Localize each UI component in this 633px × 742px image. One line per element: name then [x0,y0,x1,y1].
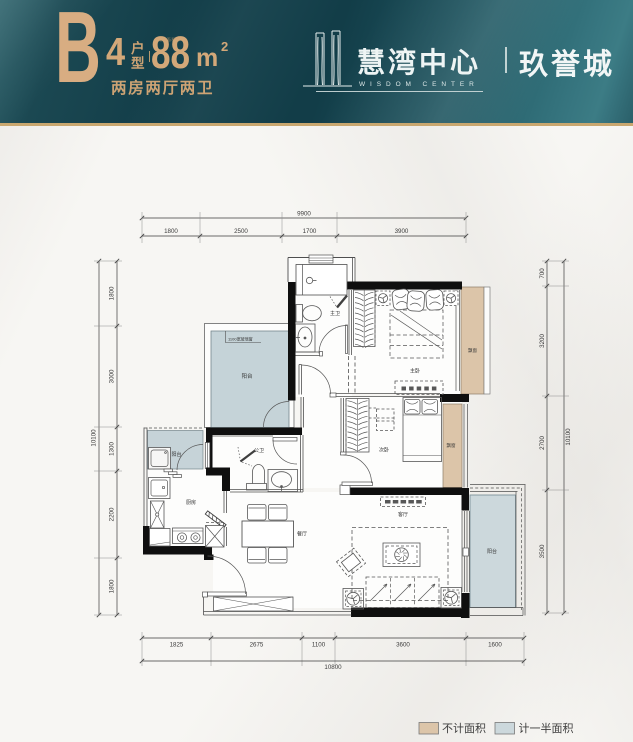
svg-text:3600: 3600 [396,642,410,649]
svg-text:1300: 1300 [109,442,116,456]
svg-text:2500: 2500 [234,228,248,235]
svg-text:计一半面积: 计一半面积 [519,721,574,735]
svg-text:餐厅: 餐厅 [297,531,307,538]
svg-text:3000: 3000 [109,369,116,383]
svg-text:阳台: 阳台 [241,372,253,380]
svg-text:次卧: 次卧 [379,447,389,454]
svg-text:1700: 1700 [303,228,317,235]
svg-text:不计面积: 不计面积 [442,722,486,735]
svg-text:3900: 3900 [395,228,409,235]
svg-text:1100: 1100 [312,642,326,649]
svg-text:阳台: 阳台 [487,548,497,555]
svg-text:厨房: 厨房 [186,499,196,506]
svg-text:1825: 1825 [170,642,184,649]
svg-text:阳台: 阳台 [171,451,181,458]
svg-text:2200: 2200 [109,507,116,521]
svg-text:10100: 10100 [565,428,572,446]
svg-text:公卫: 公卫 [254,448,264,454]
svg-text:1800: 1800 [109,286,116,300]
svg-text:1100宽玻璃窗: 1100宽玻璃窗 [228,336,253,342]
svg-text:客厅: 客厅 [398,511,408,518]
svg-text:10100: 10100 [91,429,98,447]
svg-text:主卫: 主卫 [330,310,340,317]
svg-text:2675: 2675 [250,642,264,649]
svg-text:700: 700 [539,268,546,279]
svg-text:10800: 10800 [324,664,342,671]
svg-text:2700: 2700 [539,436,546,450]
svg-text:1600: 1600 [488,642,502,649]
svg-text:9900: 9900 [297,211,311,218]
svg-text:飘窗: 飘窗 [447,442,456,449]
svg-text:1800: 1800 [164,228,178,235]
svg-text:3200: 3200 [539,334,546,348]
svg-text:1800: 1800 [109,579,116,593]
svg-text:飘窗: 飘窗 [468,347,477,354]
svg-text:主卧: 主卧 [410,368,420,375]
svg-text:3500: 3500 [539,544,546,558]
